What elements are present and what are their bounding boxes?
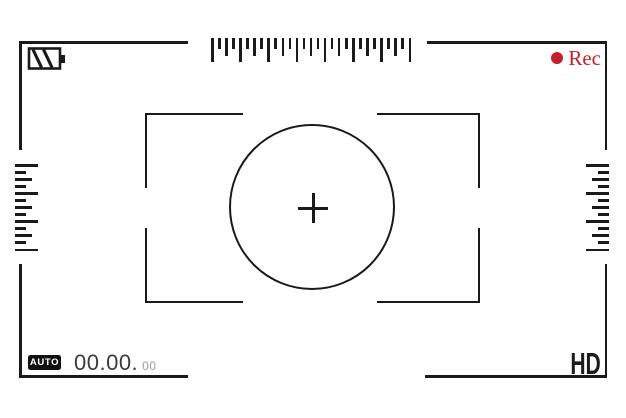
focus-bracket-top-left-h [145,113,243,115]
frame-left-upper-segment [19,41,22,150]
auto-mode-badge[interactable]: AUTO [28,355,61,370]
viewfinder: Rec AUTO 00.00. 00 HD [0,0,626,418]
focus-bracket-bottom-left-h [145,301,243,303]
frame-top-left-segment [19,41,188,44]
focus-bracket-top-left-v [145,113,147,188]
timecode-main: 00.00. [74,350,138,376]
rec-label: Rec [568,48,601,68]
crosshair-icon-vertical [312,193,315,223]
focus-bracket-top-right-v [478,113,480,188]
frame-left-lower-segment [19,264,22,378]
frame-top-right-segment [427,41,607,44]
rec-dot-icon [551,52,563,64]
focus-bracket-bottom-right-h [377,301,480,303]
focus-bracket-bottom-left-v [145,228,147,303]
frame-right-lower-segment [605,264,608,378]
hd-quality-badge: HD [571,348,601,379]
focus-bracket-top-right-h [377,113,480,115]
scale-left [15,164,38,251]
frame-right-upper-segment [605,41,608,150]
timecode: 00.00. 00 [74,350,157,376]
timecode-frames: 00 [142,359,156,373]
scale-right [586,164,609,251]
focus-bracket-bottom-right-v [478,228,480,303]
rec-indicator[interactable]: Rec [551,48,601,68]
exposure-scale-top [211,38,411,63]
battery-icon [27,46,66,78]
